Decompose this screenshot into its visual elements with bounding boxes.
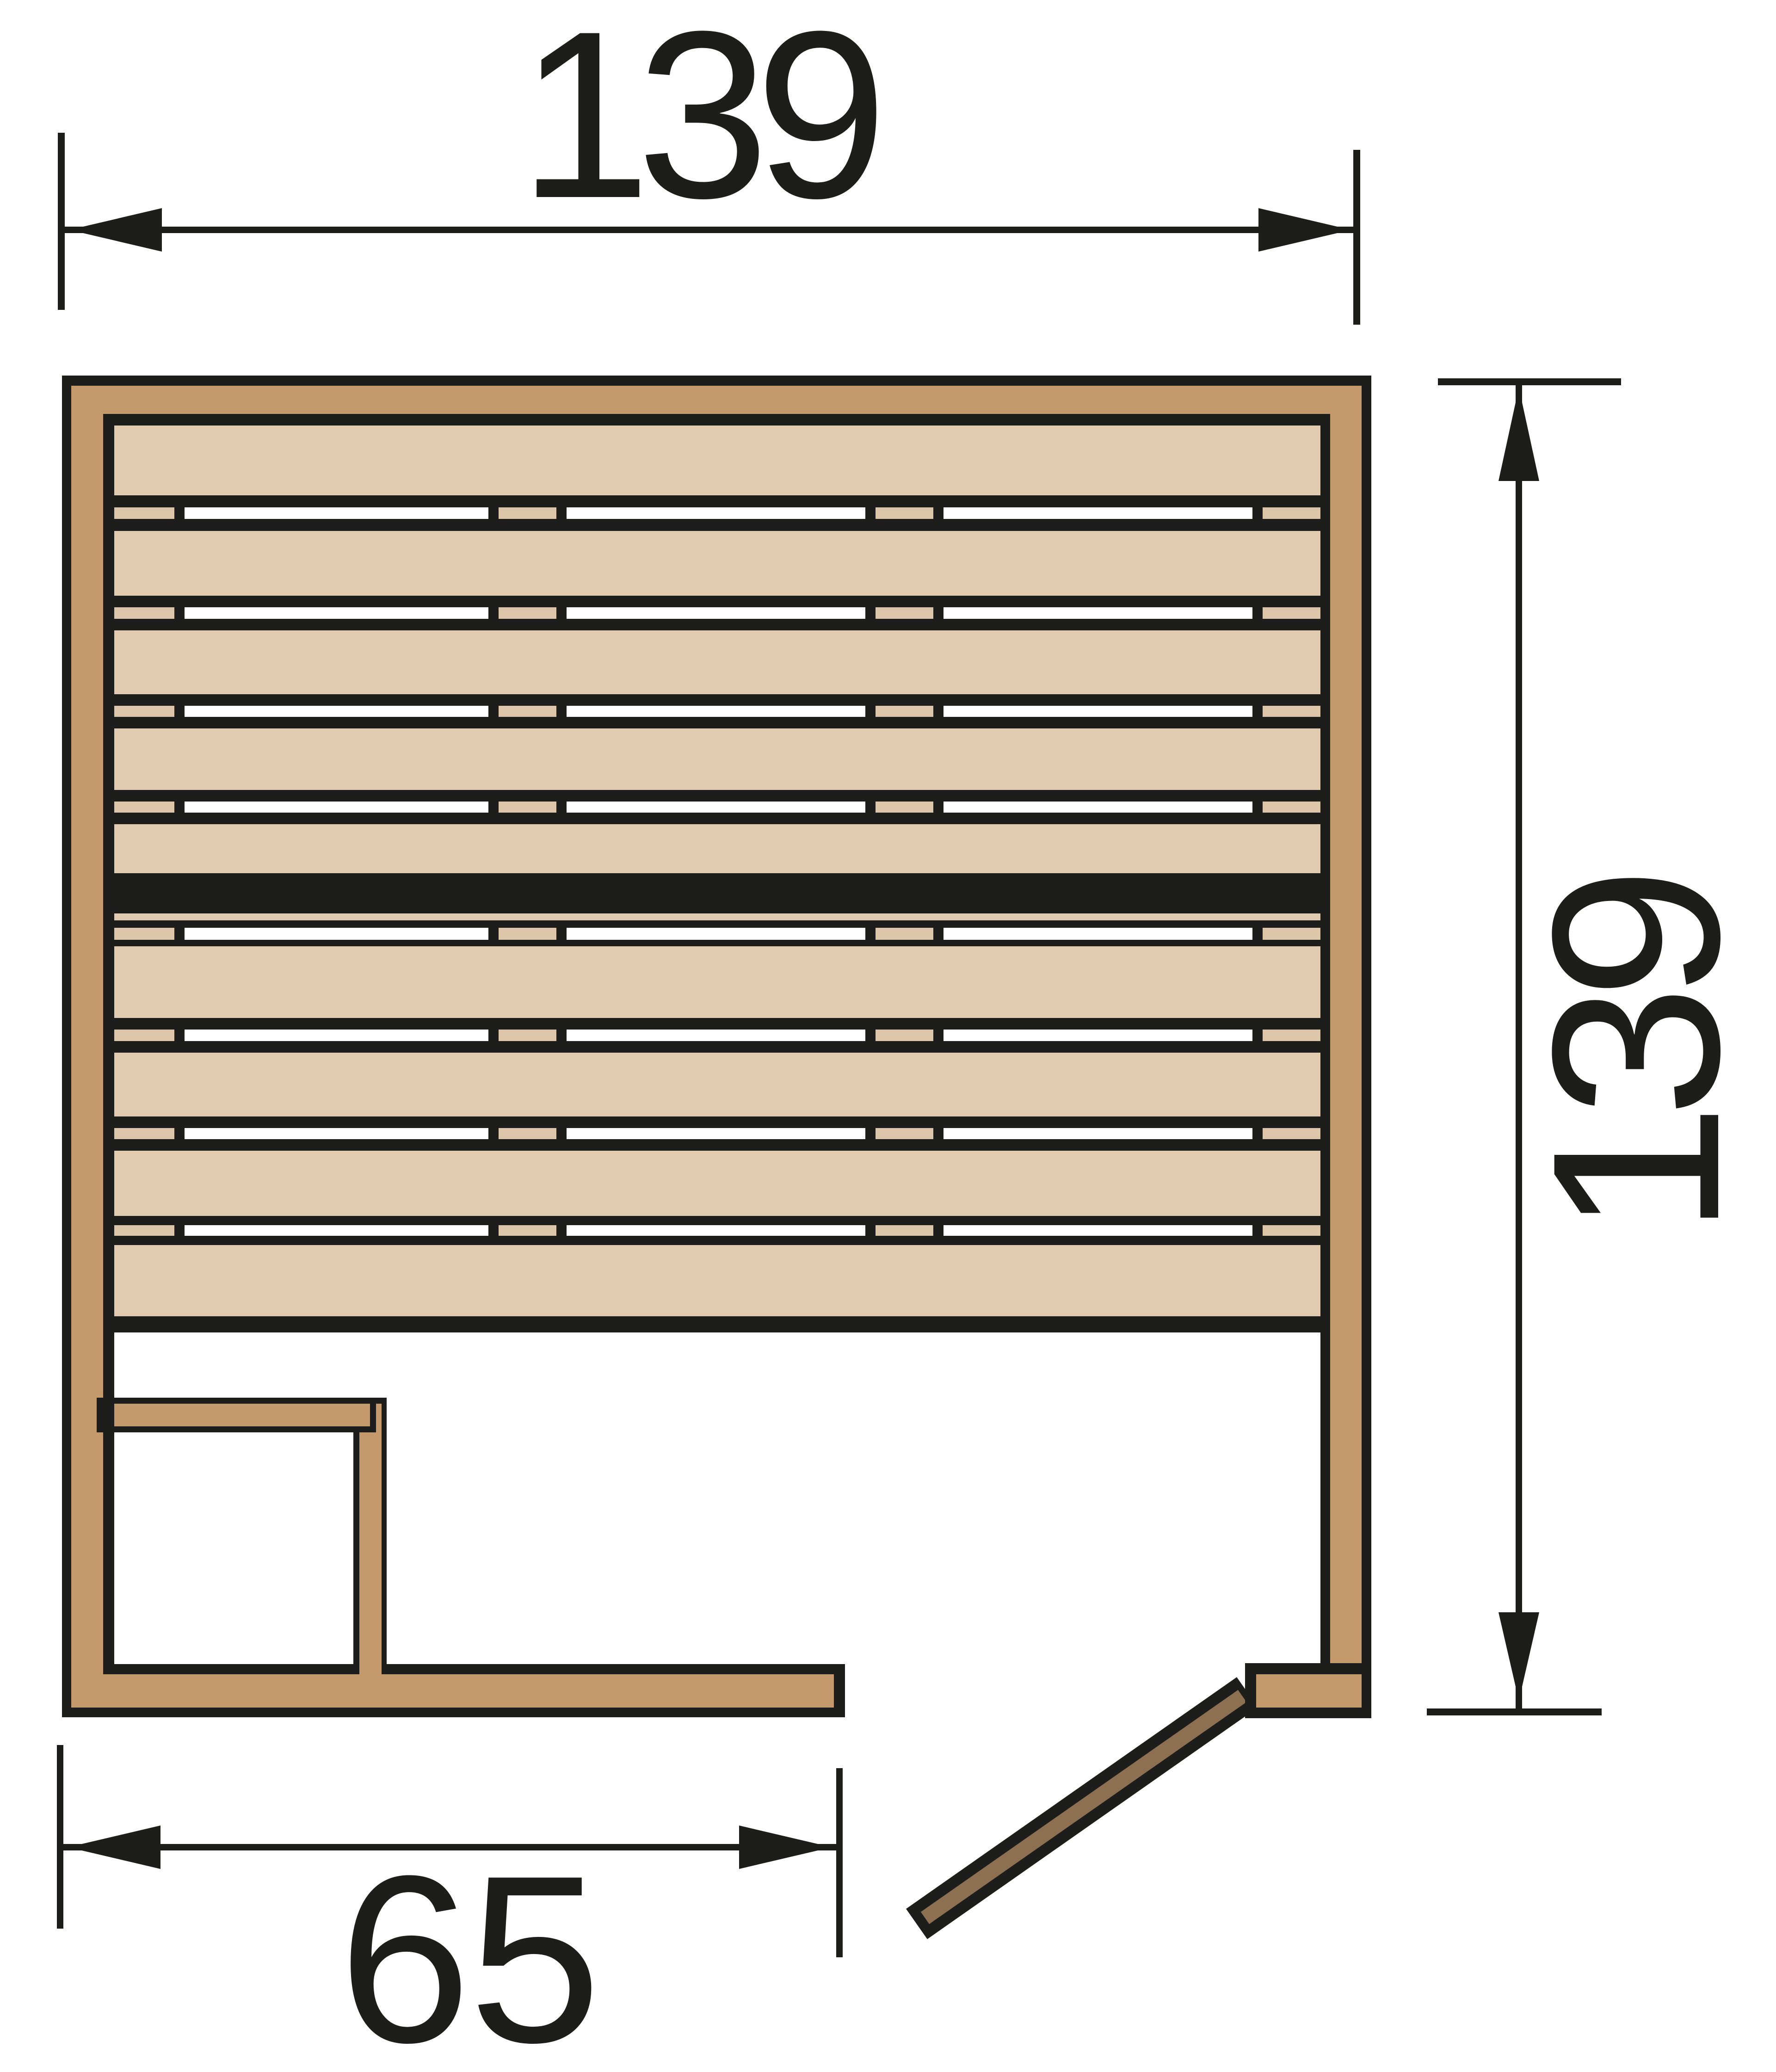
svg-text:65: 65 — [339, 1826, 601, 2072]
svg-text:139: 139 — [1503, 867, 1769, 1236]
svg-text:139: 139 — [518, 0, 888, 248]
